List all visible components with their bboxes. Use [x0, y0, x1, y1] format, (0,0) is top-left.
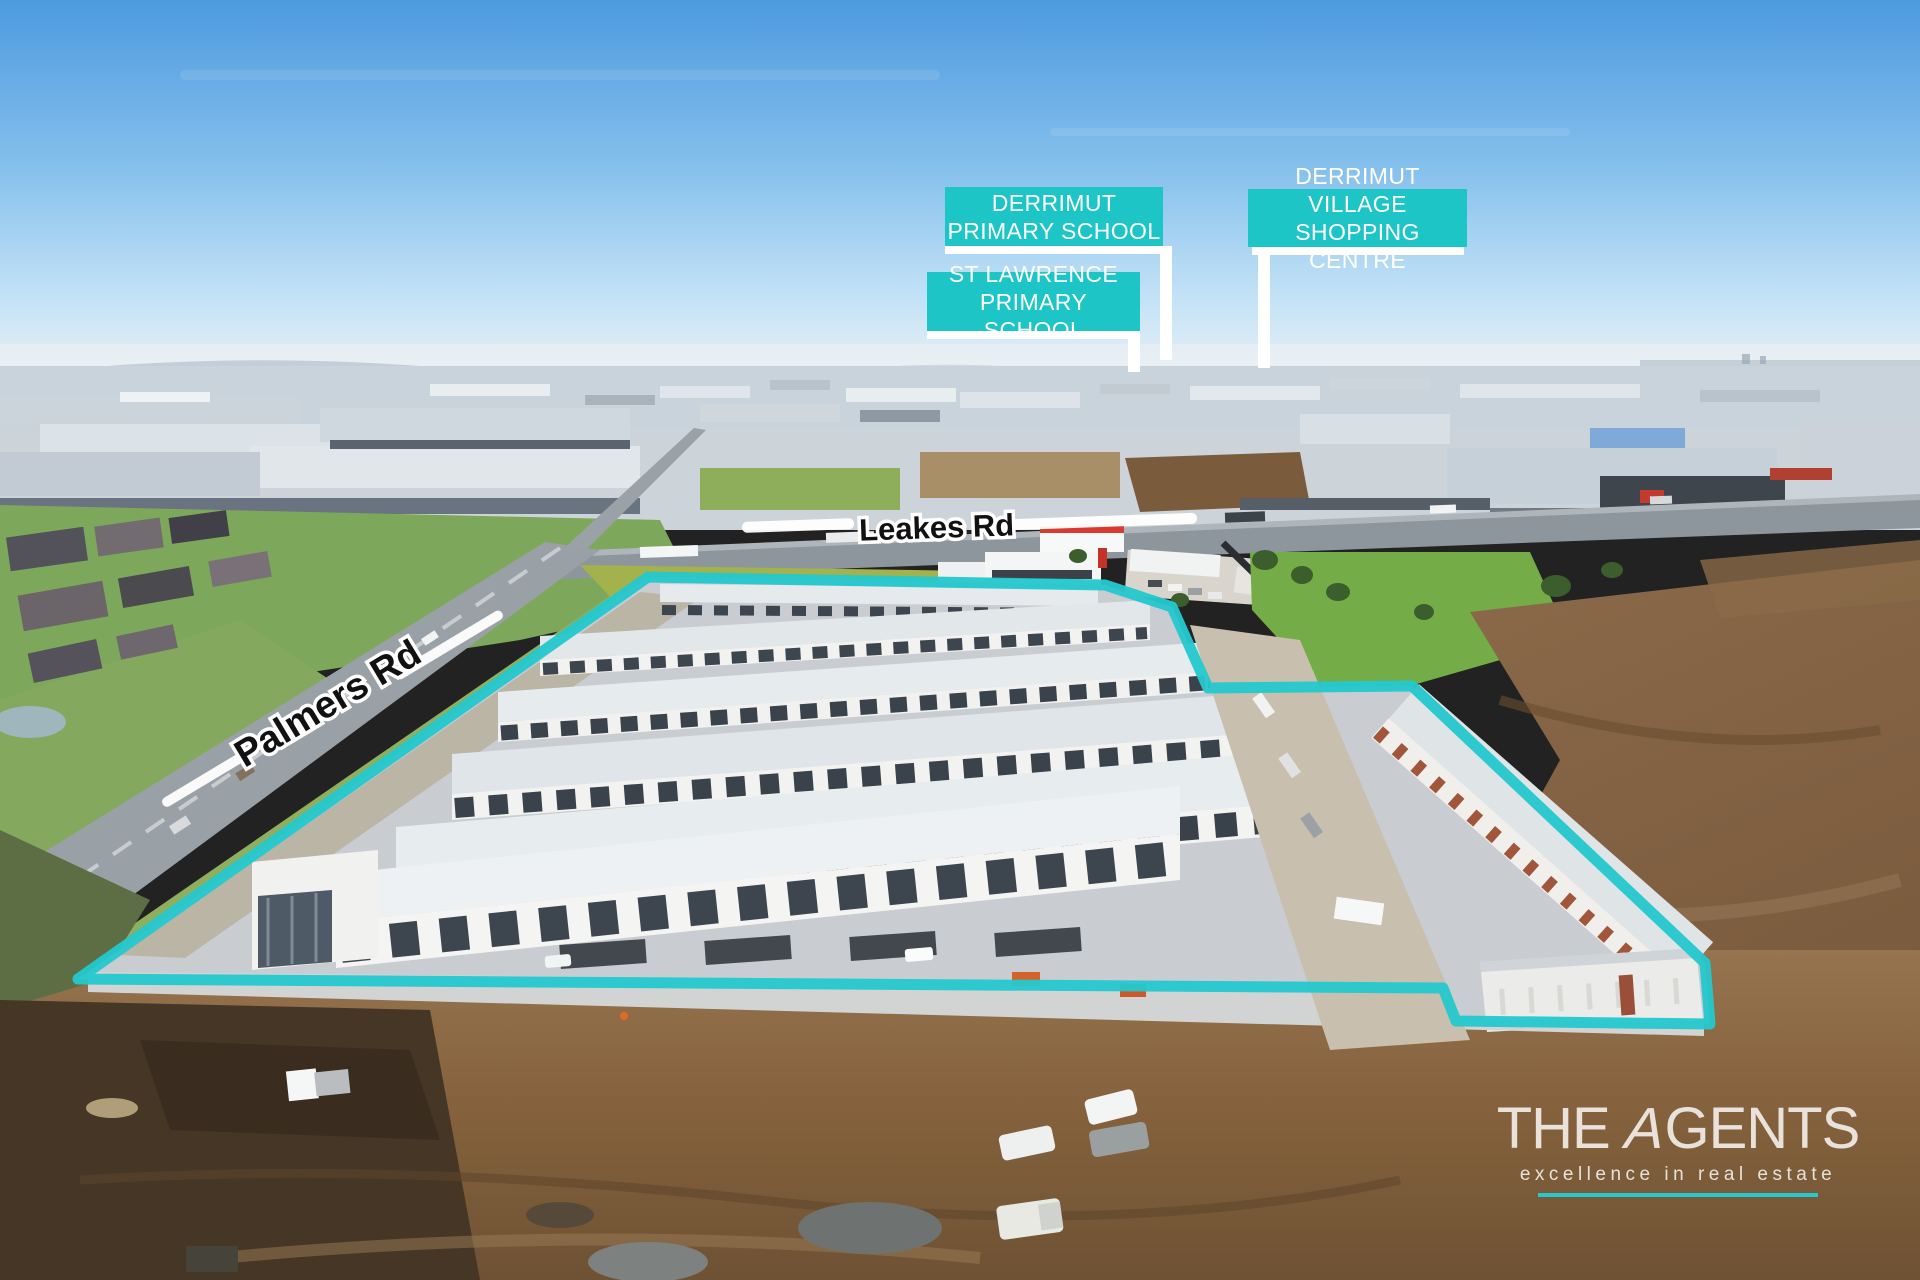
landmark-label-line1: ST LAWRENCE [949, 260, 1118, 288]
landmark-label-line2: PRIMARY SCHOOL [947, 217, 1160, 245]
agency-logo-brand: THE AGENTS [1497, 1100, 1860, 1158]
landmark-label-line1: DERRIMUT VILLAGE [1248, 162, 1467, 218]
label-pointer-line [1160, 254, 1172, 360]
landmark-label-st-lawrence-primary-school: ST LAWRENCE PRIMARY SCHOOL [927, 272, 1140, 331]
logo-brand-the: THE [1497, 1100, 1625, 1158]
distant-industrial-area [0, 366, 1920, 530]
landmark-label-derrimut-primary-school: DERRIMUT PRIMARY SCHOOL [945, 187, 1163, 246]
agency-logo: THE AGENTS excellence in real estate [1498, 1100, 1858, 1197]
landmark-label-derrimut-village-shopping-centre: DERRIMUT VILLAGE SHOPPING CENTRE [1248, 189, 1467, 247]
landmark-label-line1: DERRIMUT [992, 189, 1117, 217]
leakes-road-label: Leakes Rd [859, 507, 1015, 547]
logo-brand-gents: GENTS [1665, 1100, 1860, 1158]
label-underline [1252, 247, 1464, 255]
label-pointer-line [1128, 339, 1140, 372]
label-underline [927, 331, 1140, 339]
aerial-property-photo: Leakes Rd Palmers Rd DERRIMUT PRIMARY SC… [0, 0, 1920, 1280]
agency-logo-rule [1538, 1193, 1818, 1197]
excavator [186, 1246, 238, 1272]
logo-brand-a: A [1619, 1100, 1671, 1158]
landmark-label-line2: SHOPPING CENTRE [1248, 218, 1467, 274]
agency-logo-tagline: excellence in real estate [1520, 1164, 1836, 1186]
office-building [252, 850, 378, 970]
parked-ute [905, 947, 934, 962]
label-underline [945, 246, 1172, 254]
label-pointer-line [1258, 255, 1270, 368]
